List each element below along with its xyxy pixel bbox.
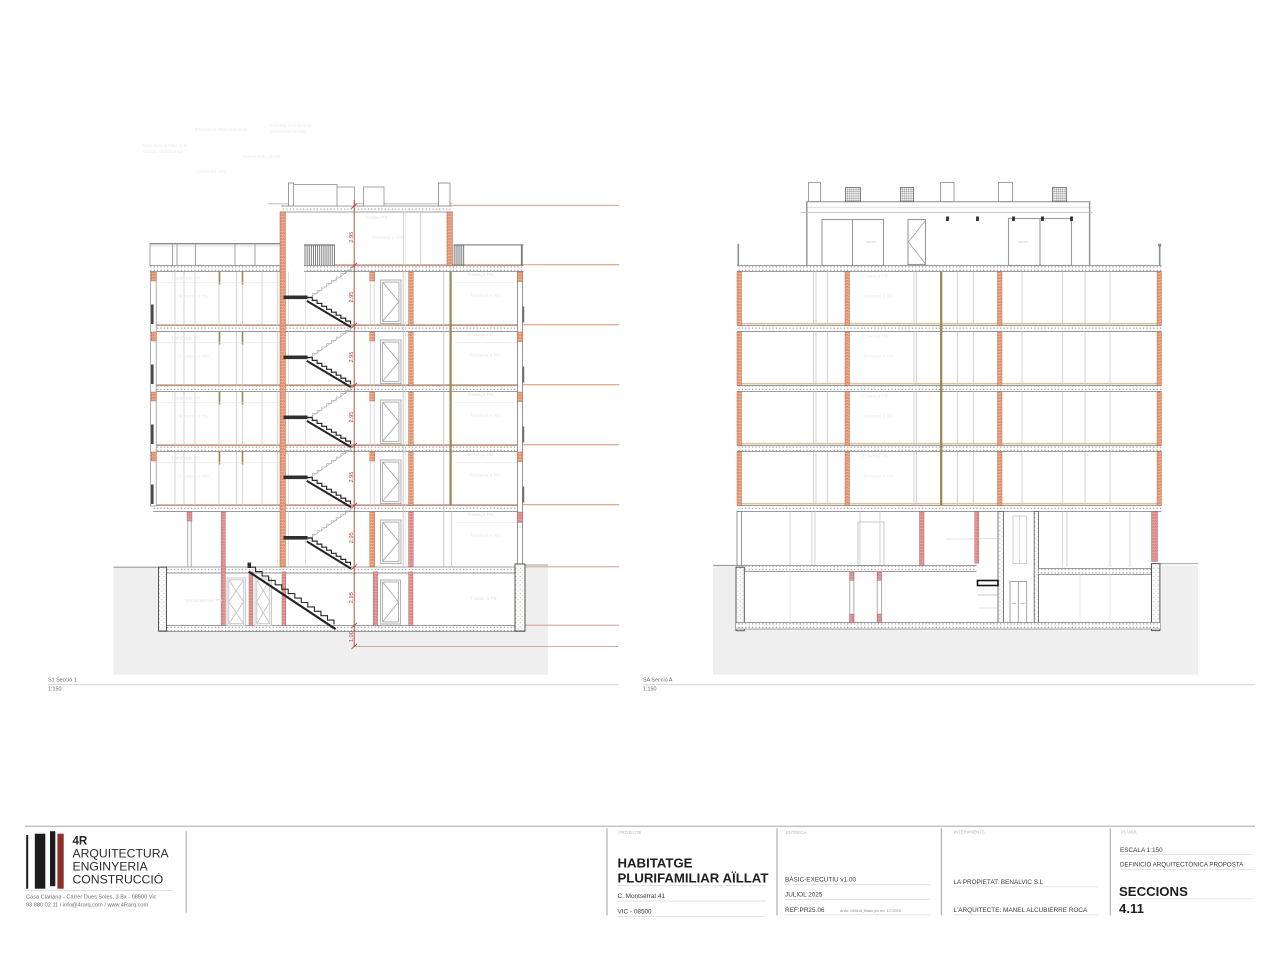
- svg-text:Estructura PB6 amb forjat: Estructura PB6 amb forjat: [195, 127, 248, 132]
- svg-text:93 880 02 11 / info@4rar: 93 880 02 11 / info@4rarq.com / www.4Rar…: [26, 903, 149, 909]
- svg-text:acabat remuntat llis: acabat remuntat llis: [143, 149, 184, 154]
- svg-text:SA Secció A: SA Secció A: [643, 678, 673, 684]
- svg-text:Semisoterrani PB: Semisoterrani PB: [185, 598, 222, 604]
- svg-text:S1 Secció 1: S1 Secció 1: [48, 678, 77, 684]
- svg-text:Terrassa a NN: Terrassa a NN: [470, 353, 501, 359]
- svg-text:Estança PB: Estança PB: [863, 394, 888, 400]
- svg-text:ESCALA 1:150: ESCALA 1:150: [1120, 847, 1163, 854]
- svg-text:REF:PR25.06: REF:PR25.06: [785, 907, 825, 914]
- svg-text:ENTREGA: ENTREGA: [786, 830, 806, 835]
- svg-text:Estança PB: Estança PB: [468, 272, 493, 278]
- svg-text:VIC - 08500: VIC - 08500: [618, 909, 653, 916]
- svg-text:Terrassa a NN: Terrassa a NN: [470, 413, 501, 419]
- svg-text:Terrassa a NN: Terrassa a NN: [863, 414, 894, 420]
- svg-text:Terrassa a NN: Terrassa a NN: [178, 294, 209, 300]
- svg-text:2.95: 2.95: [349, 412, 355, 423]
- svg-text:Traster a PB: Traster a PB: [470, 596, 497, 602]
- svg-text:2.95: 2.95: [349, 472, 355, 483]
- svg-text:2.95: 2.95: [349, 532, 355, 543]
- svg-text:Casa Clariana - Carrer Due: Casa Clariana - Carrer Dues Soles, 3 Bx …: [26, 894, 157, 900]
- svg-text:Terrassa a NN: Terrassa a NN: [470, 473, 501, 479]
- svg-text:DEFINICIÓ ARQUITECTÒNICA PROPO: DEFINICIÓ ARQUITECTÒNICA PROPOSTA: [1120, 862, 1244, 869]
- svg-text:JULIOL 2025: JULIOL 2025: [785, 892, 823, 899]
- svg-text:INTERVINENTS: INTERVINENTS: [954, 830, 985, 835]
- svg-text:Careta B1 160: Careta B1 160: [196, 169, 226, 174]
- svg-text:Habitatge PB: Habitatge PB: [172, 336, 200, 342]
- svg-text:Reculada al PB4 amb: Reculada al PB4 amb: [143, 143, 188, 148]
- svg-text:Estança PB: Estança PB: [468, 332, 493, 338]
- svg-text:Habitatge PB: Habitatge PB: [172, 396, 200, 402]
- svg-text:Estança PB: Estança PB: [468, 392, 493, 398]
- svg-text:2.95: 2.95: [349, 292, 355, 303]
- svg-text:remuntada al PB6: remuntada al PB6: [270, 129, 307, 134]
- svg-text:LA PROPIETAT: BENALVIC S.L: LA PROPIETAT: BENALVIC S.L: [954, 879, 1044, 886]
- svg-text:4.11: 4.11: [1119, 901, 1144, 916]
- svg-text:Habitatge PB: Habitatge PB: [172, 456, 200, 462]
- svg-text:Terrassa a NN: Terrassa a NN: [863, 294, 894, 300]
- svg-text:1.00: 1.00: [349, 631, 355, 642]
- svg-text:1:150: 1:150: [643, 687, 657, 693]
- svg-text:Remuntada 2F-P6: Remuntada 2F-P6: [243, 154, 281, 159]
- svg-text:Coberta amb acabat: Coberta amb acabat: [270, 123, 312, 128]
- svg-text:BÀSIC-EXECUTIU v1.00: BÀSIC-EXECUTIU v1.00: [785, 874, 856, 883]
- svg-text:ENGINYERIA: ENGINYERIA: [73, 860, 149, 874]
- svg-text:PLÀNOL: PLÀNOL: [1121, 830, 1138, 835]
- svg-text:Golfes PB: Golfes PB: [366, 215, 388, 221]
- svg-text:PLURIFAMILIAR AÏLLAT: PLURIFAMILIAR AÏLLAT: [618, 871, 769, 886]
- svg-text:Terrassa a NN: Terrassa a NN: [470, 533, 501, 539]
- svg-text:Terrassa a NN: Terrassa a NN: [178, 414, 209, 420]
- svg-text:Terrassa a NN: Terrassa a NN: [863, 354, 894, 360]
- svg-text:Habitatge PB: Habitatge PB: [172, 276, 200, 282]
- svg-text:1:150: 1:150: [48, 687, 62, 693]
- svg-text:Terrassa a NN: Terrassa a NN: [372, 235, 403, 241]
- svg-text:Estança PB: Estança PB: [863, 274, 888, 280]
- svg-text:Estança PB: Estança PB: [863, 454, 888, 460]
- svg-text:Terrassa a NN: Terrassa a NN: [178, 474, 209, 480]
- svg-text:Terrassa a NN: Terrassa a NN: [178, 354, 209, 360]
- svg-text:C. Montserrat 41: C. Montserrat 41: [618, 893, 666, 900]
- svg-text:Estança PB: Estança PB: [468, 512, 493, 518]
- svg-text:2.95: 2.95: [349, 592, 355, 603]
- svg-text:Arxiu: 250618_Bàsic.pln rev: 1: Arxiu: 250618_Bàsic.pln rev: 1/7/2025: [840, 909, 901, 913]
- svg-text:CONSTRUCCIÓ: CONSTRUCCIÓ: [73, 872, 164, 887]
- svg-text:Estança PB: Estança PB: [468, 452, 493, 458]
- svg-text:Terrassa a NN: Terrassa a NN: [470, 293, 501, 299]
- svg-text:Terrassa a NN: Terrassa a NN: [863, 474, 894, 480]
- svg-text:L'ARQUITECTE: MANEL ALCUBIERRE: L'ARQUITECTE: MANEL ALCUBIERRE ROCA: [954, 907, 1089, 914]
- svg-text:PROJECTE: PROJECTE: [619, 830, 642, 835]
- svg-text:2.95: 2.95: [349, 352, 355, 363]
- svg-text:ARQUITECTURA: ARQUITECTURA: [73, 847, 170, 861]
- svg-text:SECCIONS: SECCIONS: [1119, 884, 1188, 899]
- svg-text:Estança PB: Estança PB: [863, 334, 888, 340]
- svg-text:2.95: 2.95: [349, 232, 355, 243]
- svg-text:HABITATGE: HABITATGE: [618, 856, 693, 871]
